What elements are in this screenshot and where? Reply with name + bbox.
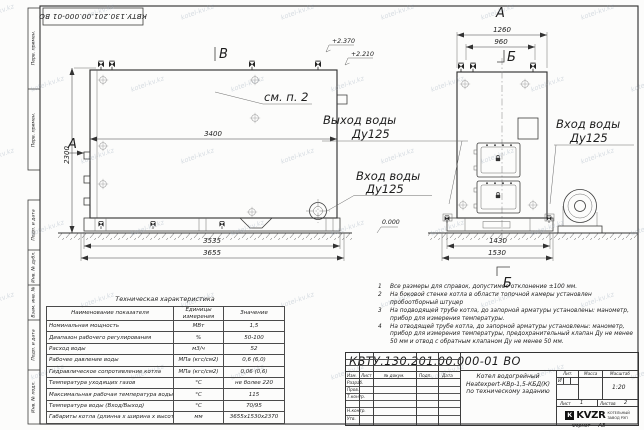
front-view-dimensions: А 1260 960 Б 1430 1530 Б 0.000 Выход вод… — [322, 6, 634, 291]
tech-cell: % — [174, 332, 224, 343]
position-mark-icon — [520, 79, 530, 89]
position-mark-icon — [250, 113, 260, 123]
tech-cell: 115 — [224, 389, 285, 400]
tech-cell: Температура воды (Вход/Выход) — [47, 400, 174, 411]
inlet-valve-icon — [547, 216, 552, 223]
drain-valve-icon — [219, 221, 224, 229]
elevation-2210: +2.210 — [351, 51, 374, 58]
strip-label-inv-podl: Инв. № подл. — [32, 381, 37, 413]
role-utv: Утв. — [347, 416, 356, 421]
tech-cell: Рабочее давление воды — [47, 355, 174, 366]
tech-cell: °С — [174, 377, 224, 388]
scale-label: Масштаб — [610, 371, 630, 376]
tech-header-name: Наименование показателя — [47, 307, 174, 321]
front-view-label: А — [495, 6, 505, 21]
drain-valve-icon — [150, 221, 155, 229]
tech-cell: мм — [174, 412, 224, 423]
fan-blower — [558, 190, 602, 234]
padlock-icon — [496, 192, 500, 198]
position-mark-icon — [250, 75, 260, 85]
front-view — [428, 58, 638, 240]
drawing-sheet: .s12{stroke:#333;stroke-width:1.15;fill:… — [0, 0, 644, 430]
safety-valve-icon — [109, 61, 115, 70]
position-mark-icon — [528, 200, 538, 210]
note-text: На подводящей трубе котла, до запорной а… — [390, 308, 635, 323]
inlet-side-label: Вход воды — [356, 169, 420, 183]
safety-valve-icon — [249, 61, 255, 70]
dim-1260: 1260 — [493, 26, 511, 34]
logo-subtitle: КОТЕЛЬНЫЙ ЗАВОД РЭП — [608, 411, 630, 419]
tech-table-title: Техническая характеристика — [46, 295, 284, 306]
dim-1530: 1530 — [488, 249, 506, 257]
logo-sub-line2: ЗАВОД РЭП — [608, 416, 630, 420]
callout-see-note: см. п. 2 — [264, 90, 308, 104]
note-number: 3 — [378, 308, 390, 323]
drain-valve-icon — [98, 221, 103, 229]
furnace-door-upper — [474, 143, 520, 177]
safety-valve-icon — [98, 61, 104, 70]
col-list: Лист — [361, 373, 372, 378]
format-label: Формат — [572, 424, 590, 429]
note-text: На боковой стенке котла в области топочн… — [390, 292, 635, 307]
note-number: 2 — [378, 292, 390, 307]
side-view — [58, 61, 352, 240]
tech-table: Наименование показателя Единицы измерени… — [46, 306, 285, 424]
tech-header-units: Единицы измерения — [174, 307, 224, 321]
tech-cell: МВт — [174, 321, 224, 332]
notes-list: 1Все размеры для справок, допустимое отк… — [378, 284, 635, 347]
tech-row: Габариты котла (длинна х ширина х высота… — [47, 412, 285, 423]
dim-3400: 3400 — [204, 130, 222, 138]
tech-cell: 0,6 (6,0) — [224, 355, 285, 366]
safety-valve-icon — [470, 63, 476, 72]
col-data: Дата — [442, 373, 453, 378]
strip-label-perv-primen-2: Перв. примен. — [32, 113, 37, 148]
strip-label-podp-data-2: Подп. и дата — [32, 329, 37, 360]
tech-row: Рабочее давление водыМПа (кгс/см2)0,6 (6… — [47, 355, 285, 366]
note-number: 1 — [378, 284, 390, 291]
tech-cell: 0,06 (0,6) — [224, 366, 285, 377]
doc-number-stamp: КВТУ.130.201.00.000-01 ВО — [43, 8, 143, 25]
product-line3: по техническому заданию — [466, 388, 549, 396]
tech-row: Гидравлическое сопротивление котлаМПа (к… — [47, 366, 285, 377]
format-value: А3 — [598, 423, 605, 429]
position-mark-icon — [247, 207, 257, 217]
note-item: 4На отводящей трубе котла, до запорной а… — [378, 324, 635, 346]
tech-characteristics: Техническая характеристика Наименование … — [46, 295, 284, 424]
role-tkontr: Т.контр. — [347, 394, 365, 399]
inlet-flange — [306, 199, 330, 223]
note-item: 1Все размеры для справок, допустимое отк… — [378, 284, 635, 291]
role-prov: Пров. — [347, 387, 359, 392]
elevation-2370: +2.370 — [332, 38, 355, 45]
product-name: Котел водогрейный Heatexpert-КВр-1,5-КБД… — [460, 370, 556, 399]
col-podp: Подп. — [419, 373, 432, 378]
mass-label: Масса — [584, 371, 597, 376]
scale-value: 1:20 — [612, 384, 625, 391]
position-mark-icon — [458, 200, 468, 210]
tech-row: Диапазон рабочего регулирования%50-100 — [47, 332, 285, 343]
product-line2: Heatexpert-КВр-1,5-КБД(К) — [466, 381, 550, 389]
section-b-top-label: Б — [507, 50, 516, 65]
elevation-zero: 0.000 — [382, 219, 400, 226]
sheets-label: Листов — [600, 401, 616, 406]
strip-label-inv-dubl: Инв. № дубл. — [32, 251, 37, 282]
safety-valve-icon — [458, 63, 464, 72]
tech-cell: °С — [174, 389, 224, 400]
padlock-icon — [496, 155, 500, 161]
product-line1: Котел водогрейный — [477, 373, 540, 381]
lit-label: Лит. — [563, 371, 573, 376]
tech-row: Расход водым3/ч52 — [47, 343, 285, 354]
outlet-label: Выход воды — [323, 113, 396, 127]
tech-cell: Габариты котла (длинна х ширина х высота… — [47, 412, 174, 423]
tech-cell: 3655х1530х2370 — [224, 412, 285, 423]
col-doc: № докум. — [384, 373, 405, 378]
tech-cell: Температура уходящих газов — [47, 377, 174, 388]
position-mark-icon — [98, 75, 108, 85]
inlet-side-dn: Ду125 — [365, 182, 404, 196]
tech-cell: МПа (кгс/см2) — [174, 366, 224, 377]
sight-window — [518, 118, 538, 139]
note-text: Все размеры для справок, допустимое откл… — [390, 284, 577, 291]
strip-label-vzam-inv: Взам. инв. № — [32, 286, 37, 317]
tech-cell: Гидравлическое сопротивление котла — [47, 366, 174, 377]
furnace-door-lower — [474, 181, 520, 213]
tech-cell: Расход воды — [47, 343, 174, 354]
side-view-dimensions: 3400 2300 3535 3655 В А см. п. 2 +2.370 … — [63, 38, 432, 261]
inlet-front-label: Вход воды — [556, 117, 620, 131]
tech-cell: 50-100 — [224, 332, 285, 343]
dim-3535: 3535 — [203, 237, 221, 245]
outlet-dn: Ду125 — [351, 127, 390, 141]
tech-row: Температура уходящих газов°Сне более 220 — [47, 377, 285, 388]
position-mark-icon — [98, 141, 108, 151]
tech-cell: 70/95 — [224, 400, 285, 411]
tech-row: Максимальная рабочая температура воды°С1… — [47, 389, 285, 400]
logo-mark-icon: К — [565, 411, 574, 420]
tech-cell: Максимальная рабочая температура воды — [47, 389, 174, 400]
title-block: Изм. Лист № докум. Подп. Дата Разраб. Пр… — [345, 352, 639, 426]
role-nkontr: Н.контр. — [347, 408, 366, 413]
note-item: 2На боковой стенке котла в области топоч… — [378, 292, 635, 307]
tech-row: Температура воды (Вход/Выход)°С70/95 — [47, 400, 285, 411]
doc-number-stamp-text: КВТУ.130.201.00.000-01 ВО — [39, 12, 147, 21]
tech-header-value: Значение — [224, 307, 285, 321]
sheet-label: Лист — [560, 401, 571, 406]
tech-cell: Номинальная мощность — [47, 321, 174, 332]
safety-valve-icon — [530, 63, 536, 72]
strip-label-perv-primen-1: Перв. примен. — [32, 31, 37, 66]
dim-3655: 3655 — [203, 249, 221, 257]
tech-cell: Диапазон рабочего регулирования — [47, 332, 174, 343]
dim-960: 960 — [494, 38, 508, 46]
strip-label-podp-data-1: Подп. и дата — [32, 209, 37, 240]
position-mark-icon — [460, 79, 470, 89]
lit-value: И — [558, 378, 562, 384]
format-note: Формат А3 — [572, 423, 606, 429]
view-a-arrow-label: А — [67, 137, 77, 152]
tech-cell: м3/ч — [174, 343, 224, 354]
dim-1430: 1430 — [489, 237, 507, 245]
tech-header-row: Наименование показателя Единицы измерени… — [47, 307, 285, 321]
tech-cell: МПа (кгс/см2) — [174, 355, 224, 366]
position-mark-icon — [98, 179, 108, 189]
role-razrab: Разраб. — [347, 380, 363, 385]
note-item: 3На подводящей трубе котла, до запорной … — [378, 308, 635, 323]
tech-cell: °С — [174, 400, 224, 411]
col-izm: Изм. — [347, 373, 357, 378]
note-number: 4 — [378, 324, 390, 346]
tech-row: Номинальная мощностьМВт1,5 — [47, 321, 285, 332]
note-text: На отводящей трубе котла, до запорной ар… — [390, 324, 635, 346]
safety-valve-icon — [315, 61, 321, 70]
logo-text: KVZR — [576, 410, 605, 421]
inlet-front-dn: Ду125 — [569, 131, 608, 145]
tech-cell: 1,5 — [224, 321, 285, 332]
tech-cell: не более 220 — [224, 377, 285, 388]
view-b-label: В — [219, 47, 228, 62]
tech-cell: 52 — [224, 343, 285, 354]
